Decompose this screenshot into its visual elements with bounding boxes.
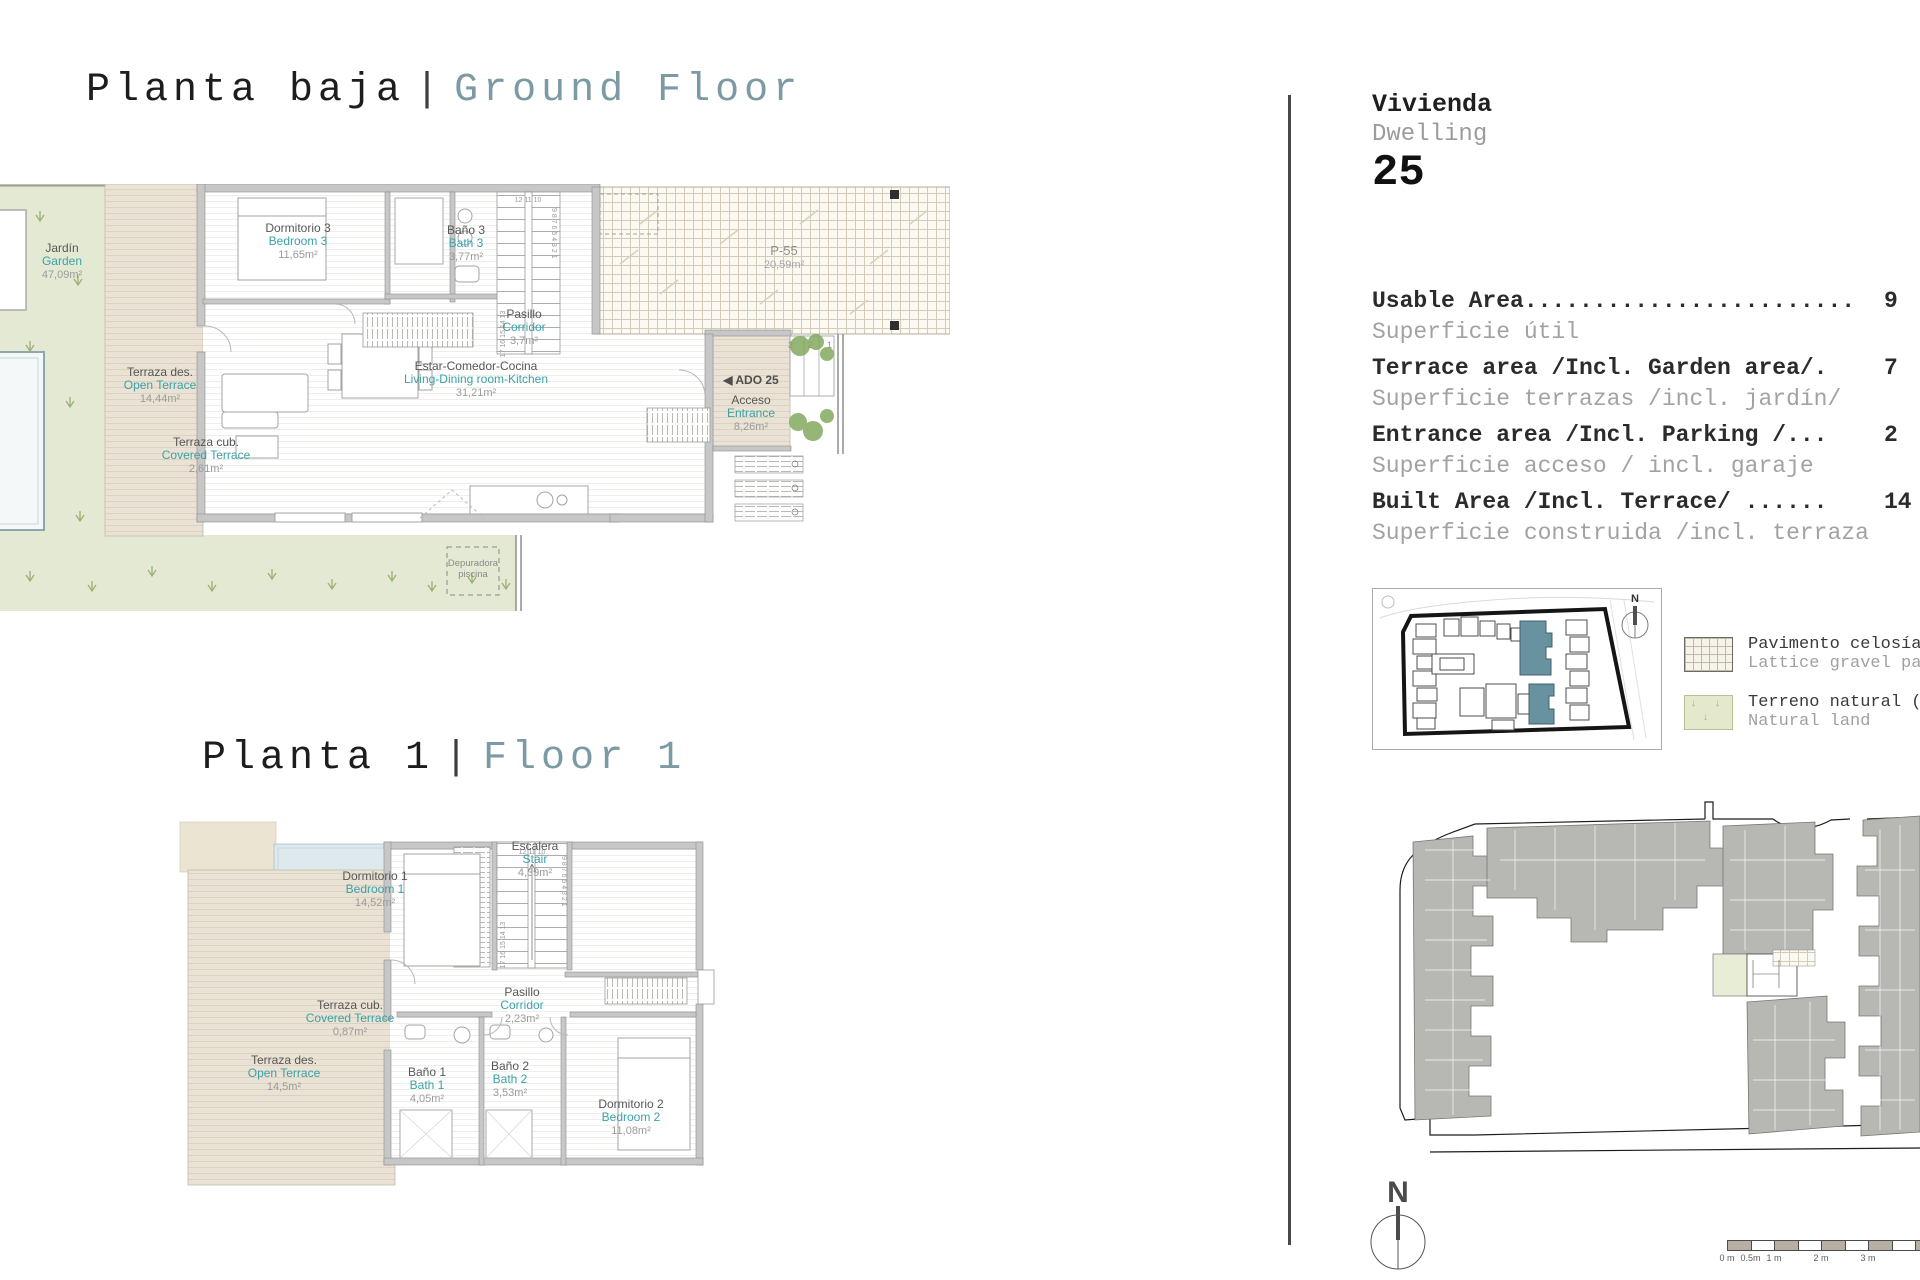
scale-segment bbox=[1822, 1241, 1846, 1250]
scale-segment bbox=[1728, 1241, 1752, 1250]
area-value: 2 bbox=[1884, 420, 1898, 451]
north-compass: N bbox=[1366, 1176, 1430, 1272]
room-name-es: Terraza des. bbox=[124, 366, 197, 379]
window-bay bbox=[698, 970, 714, 1004]
area-label-es: Superficie terrazas /incl. jardín/ bbox=[1372, 384, 1920, 415]
legend-label-en: Natural land bbox=[1748, 712, 1920, 731]
room-area: 31,21m² bbox=[404, 387, 548, 399]
parking-code: P-55 bbox=[764, 244, 804, 259]
room-label-dormitorio2: Dormitorio 2 Bedroom 2 11,08m² bbox=[598, 1098, 663, 1137]
scale-segment bbox=[1775, 1241, 1799, 1250]
room-name-es: Escalera bbox=[512, 840, 559, 853]
room-name-en: Corridor bbox=[502, 321, 545, 334]
floor1-title-en: Floor 1 bbox=[483, 736, 686, 781]
parking-area-value: 20,59m² bbox=[764, 259, 804, 271]
room-area: 3,53m² bbox=[491, 1087, 529, 1099]
room-area: 0,87m² bbox=[306, 1026, 395, 1038]
area-label-en: Built Area /Incl. Terrace/ ...... bbox=[1372, 487, 1920, 518]
room-area: 14,5m² bbox=[248, 1081, 321, 1093]
room-label-covered-terrace: Terraza cub. Covered Terrace 2,61m² bbox=[162, 436, 251, 475]
room-name-es: Baño 1 bbox=[408, 1066, 446, 1079]
room-area: 2,61m² bbox=[162, 463, 251, 475]
room-name-en: Entrance bbox=[727, 407, 775, 420]
vertical-divider bbox=[1288, 95, 1291, 1245]
lattice-swatch-icon bbox=[1684, 637, 1733, 672]
room-name-en: Bedroom 2 bbox=[598, 1111, 663, 1124]
room-label-bano3: Baño 3 Bath 3 3,77m² bbox=[447, 224, 485, 263]
room-name-es: Dormitorio 1 bbox=[342, 870, 407, 883]
legend-label-en: Lattice gravel pa bbox=[1748, 654, 1920, 673]
stair-numbers-left: 17 16 15 14 13 bbox=[500, 922, 507, 969]
room-name-en: Living-Dining room-Kitchen bbox=[404, 373, 548, 386]
room-name-es: Baño 2 bbox=[491, 1060, 529, 1073]
room-label-pasillo: Pasillo Corridor 3,7m² bbox=[502, 308, 545, 347]
floor1-plan: 12 11 10 17 16 15 14 13 9 8 7 6 5 4 3 2 … bbox=[150, 820, 750, 1190]
room-name-es: Terraza cub. bbox=[306, 999, 395, 1012]
room-area: 8,26m² bbox=[727, 421, 775, 433]
scale-label: 3 m bbox=[1860, 1253, 1875, 1263]
site-overview-plan bbox=[1375, 790, 1920, 1175]
room-name-en: Corridor bbox=[500, 999, 543, 1012]
title-separator: | bbox=[415, 68, 444, 113]
natural-land-swatch-icon bbox=[1684, 695, 1733, 730]
plan-sheet-page: Planta baja|Ground Floor bbox=[0, 0, 1920, 1280]
room-area: 11,08m² bbox=[598, 1125, 663, 1137]
room-label-covered-terrace1: Terraza cub. Covered Terrace 0,87m² bbox=[306, 999, 395, 1038]
area-row-built: Built Area /Incl. Terrace/ ...... Superf… bbox=[1372, 487, 1920, 549]
room-label-jardin: Jardín Garden 47,09m² bbox=[42, 242, 82, 281]
room-area: 11,65m² bbox=[265, 249, 330, 261]
room-name-en: Bath 1 bbox=[408, 1079, 446, 1092]
plant-icon bbox=[1715, 699, 1720, 709]
room-name-en: Bedroom 3 bbox=[265, 235, 330, 248]
ground-floor-plan: 12 11 10 17 16 15 14 13 9 8 7 6 5 4 3 2 … bbox=[0, 184, 950, 624]
room-area: 4,05m² bbox=[408, 1093, 446, 1105]
room-label-open-terrace: Terraza des. Open Terrace 14,44m² bbox=[124, 366, 197, 405]
building-clusters bbox=[1413, 816, 1920, 1136]
room-name-en: Garden bbox=[42, 255, 82, 268]
room-label-pasillo1: Pasillo Corridor 2,23m² bbox=[500, 986, 543, 1025]
title-separator: | bbox=[444, 736, 473, 781]
scale-label: 2 m bbox=[1813, 1253, 1828, 1263]
dwelling-number: 25 bbox=[1372, 148, 1425, 198]
area-spec-list: Usable Area........................ Supe… bbox=[1372, 286, 1920, 554]
room-name-es: Dormitorio 2 bbox=[598, 1098, 663, 1111]
room-name-es: Pasillo bbox=[500, 986, 543, 999]
parking-label: P-55 20,59m² bbox=[764, 244, 804, 271]
room-name-en: Open Terrace bbox=[124, 379, 197, 392]
ado-label: ◀ ADO 25 bbox=[723, 374, 778, 387]
room-name-en: Covered Terrace bbox=[162, 449, 251, 462]
area-label-en: Entrance area /Incl. Parking /... bbox=[1372, 420, 1920, 451]
room-name-es: Terraza des. bbox=[248, 1054, 321, 1067]
room-name-en: Covered Terrace bbox=[306, 1012, 395, 1025]
scale-label: 0 m bbox=[1719, 1253, 1734, 1263]
legend-label-es: Terreno natural ( bbox=[1748, 693, 1920, 712]
room-area: 47,09m² bbox=[42, 269, 82, 281]
room-name-en: Bath 3 bbox=[447, 237, 485, 250]
room-area: 3,7m² bbox=[502, 335, 545, 347]
area-label-es: Superficie acceso / incl. garaje bbox=[1372, 451, 1920, 482]
ground-title-en: Ground Floor bbox=[454, 68, 802, 113]
room-area: 14,44m² bbox=[124, 393, 197, 405]
scale-label: 1 m bbox=[1766, 1253, 1781, 1263]
compass-n-letter: N bbox=[1631, 593, 1639, 605]
room-area: 2,23m² bbox=[500, 1013, 543, 1025]
area-label-en: Terrace area /Incl. Garden area/. bbox=[1372, 353, 1920, 384]
room-label-bano2: Baño 2 Bath 2 3,53m² bbox=[491, 1060, 529, 1099]
room-label-open-terrace1: Terraza des. Open Terrace 14,5m² bbox=[248, 1054, 321, 1093]
room-name-es: Pasillo bbox=[502, 308, 545, 321]
room-area: 3,77m² bbox=[447, 251, 485, 263]
plant-icon bbox=[1691, 699, 1696, 709]
scale-segment bbox=[1869, 1241, 1893, 1250]
room-name-es: Terraza cub. bbox=[162, 436, 251, 449]
room-area: 4,39m² bbox=[512, 867, 559, 879]
dwelling-label-en: Dwelling bbox=[1372, 121, 1487, 148]
legend-label-es: Pavimento celosía bbox=[1748, 635, 1920, 654]
room-label-dormitorio1: Dormitorio 1 Bedroom 1 14,52m² bbox=[342, 870, 407, 909]
room-label-living: Estar-Comedor-Cocina Living-Dining room-… bbox=[404, 360, 548, 399]
area-label-en: Usable Area........................ bbox=[1372, 286, 1920, 317]
room-name-en: Bedroom 1 bbox=[342, 883, 407, 896]
roof-strip bbox=[180, 822, 276, 872]
room-label-bano1: Baño 1 Bath 1 4,05m² bbox=[408, 1066, 446, 1105]
highlighted-dwelling bbox=[1713, 950, 1815, 996]
room-name-es: Baño 3 bbox=[447, 224, 485, 237]
stair-numbers-right: 9 8 7 6 5 4 3 2 1 bbox=[550, 208, 557, 259]
area-value: 9 bbox=[1884, 286, 1898, 317]
room-name-en: Stair bbox=[512, 853, 559, 866]
area-label-es: Superficie construida /incl. terraza bbox=[1372, 518, 1920, 549]
room-label-entrance: Acceso Entrance 8,26m² bbox=[727, 394, 775, 433]
room-name-es: Jardín bbox=[42, 242, 82, 255]
scale-bar-track bbox=[1727, 1240, 1920, 1251]
ado-text: ◀ ADO 25 bbox=[723, 374, 778, 387]
floor1-title: Planta 1|Floor 1 bbox=[202, 736, 686, 781]
scale-segment bbox=[1893, 1241, 1917, 1250]
plant-icon bbox=[1703, 713, 1708, 723]
scale-label: 0.5m bbox=[1740, 1253, 1760, 1263]
scale-segment bbox=[1916, 1241, 1920, 1250]
room-label-escalera: Escalera Stair 4,39m² bbox=[512, 840, 559, 879]
room-name-es: Dormitorio 3 bbox=[265, 222, 330, 235]
area-row-terrace: Terrace area /Incl. Garden area/. Superf… bbox=[1372, 353, 1920, 415]
pool-filter-label: Depuradora piscina bbox=[448, 558, 498, 581]
area-label-es: Superficie útil bbox=[1372, 317, 1920, 348]
ground-title-es: Planta baja bbox=[86, 68, 405, 113]
room-name-es: Acceso bbox=[727, 394, 775, 407]
ground-floor-title: Planta baja|Ground Floor bbox=[86, 68, 802, 113]
area-value: 7 bbox=[1884, 353, 1898, 384]
area-row-usable: Usable Area........................ Supe… bbox=[1372, 286, 1920, 348]
room-name-en: Open Terrace bbox=[248, 1067, 321, 1080]
area-row-entrance: Entrance area /Incl. Parking /... Superf… bbox=[1372, 420, 1920, 482]
area-value: 14 bbox=[1884, 487, 1912, 518]
room-name-en: Bath 2 bbox=[491, 1073, 529, 1086]
scale-bar: 0 m 0.5m 1 m 2 m 3 m bbox=[1727, 1240, 1920, 1263]
stair-numbers-right: 9 8 7 6 5 4 3 2 1 bbox=[560, 856, 567, 907]
floor1-title-es: Planta 1 bbox=[202, 736, 434, 781]
room-area: 14,52m² bbox=[342, 897, 407, 909]
scale-segment bbox=[1752, 1241, 1776, 1250]
stair-numbers-top: 12 11 10 bbox=[515, 197, 542, 204]
room-label-dormitorio3: Dormitorio 3 Bedroom 3 11,65m² bbox=[265, 222, 330, 261]
compass-n-letter: N bbox=[1387, 1176, 1409, 1209]
open-terrace-region bbox=[105, 184, 203, 536]
scale-segment bbox=[1846, 1241, 1870, 1250]
pool-filter-line1: Depuradora bbox=[448, 558, 498, 569]
room-name-es: Estar-Comedor-Cocina bbox=[404, 360, 548, 373]
scale-segment bbox=[1799, 1241, 1823, 1250]
dwelling-label-es: Vivienda bbox=[1372, 90, 1492, 119]
pool-filter-line2: piscina bbox=[448, 569, 498, 580]
site-location-minimap: N bbox=[1372, 588, 1662, 750]
